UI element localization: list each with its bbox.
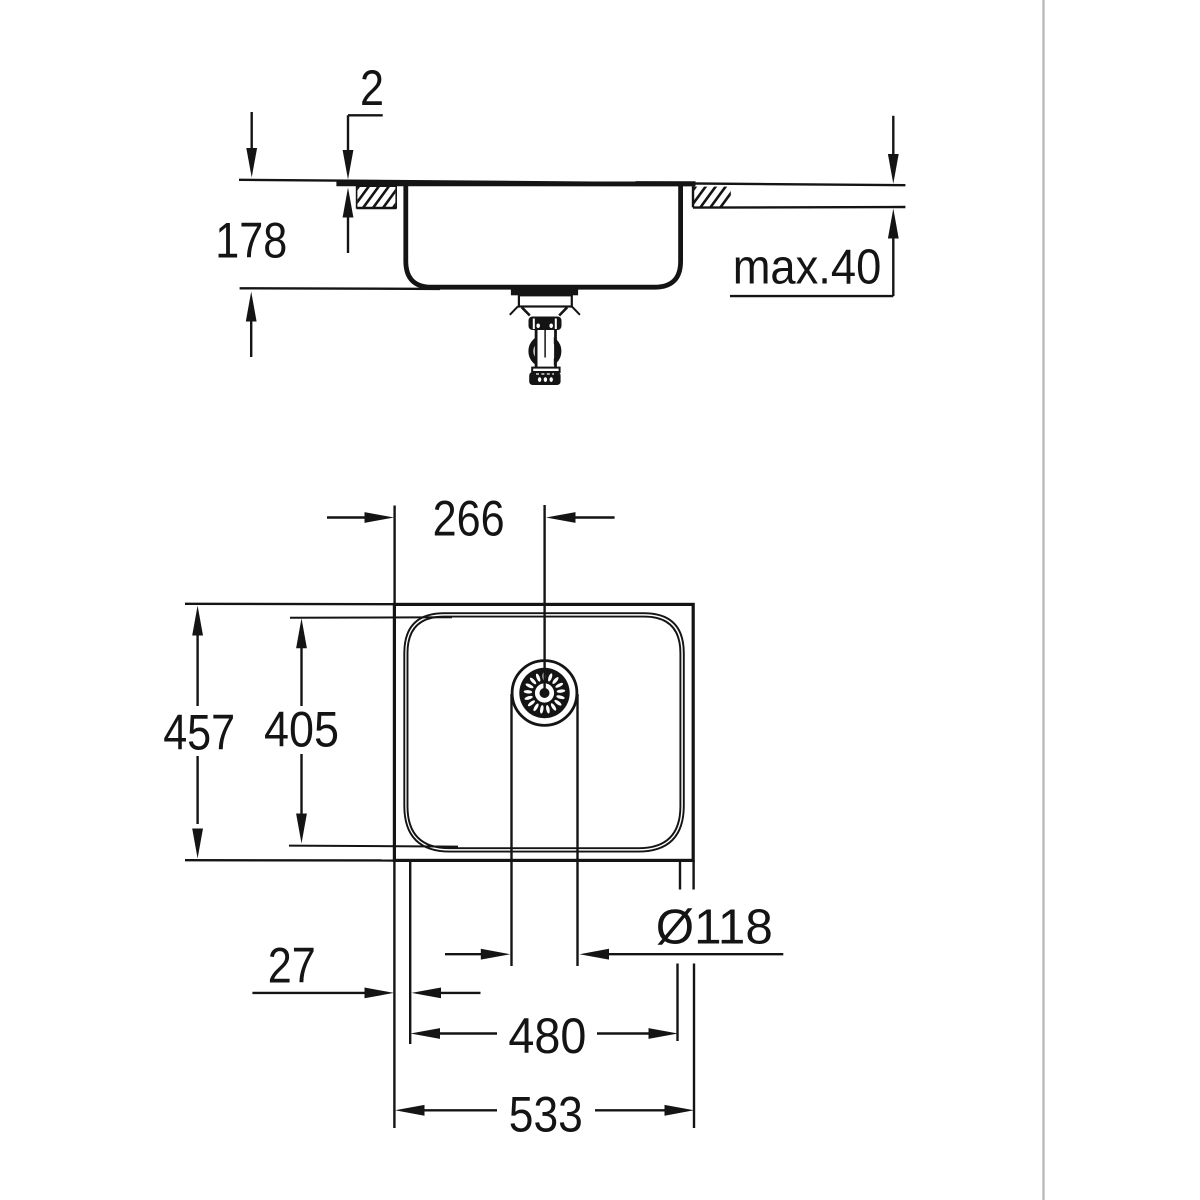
svg-text:480: 480 bbox=[508, 1008, 586, 1064]
svg-text:Ø118: Ø118 bbox=[656, 901, 773, 955]
svg-text:178: 178 bbox=[215, 213, 287, 269]
svg-text:457: 457 bbox=[163, 704, 235, 760]
svg-text:405: 405 bbox=[264, 702, 339, 758]
svg-text:2: 2 bbox=[360, 60, 384, 116]
svg-text:27: 27 bbox=[268, 937, 316, 993]
svg-text:266: 266 bbox=[433, 491, 505, 547]
svg-text:533: 533 bbox=[509, 1087, 583, 1143]
svg-text:max.40: max.40 bbox=[733, 241, 882, 295]
